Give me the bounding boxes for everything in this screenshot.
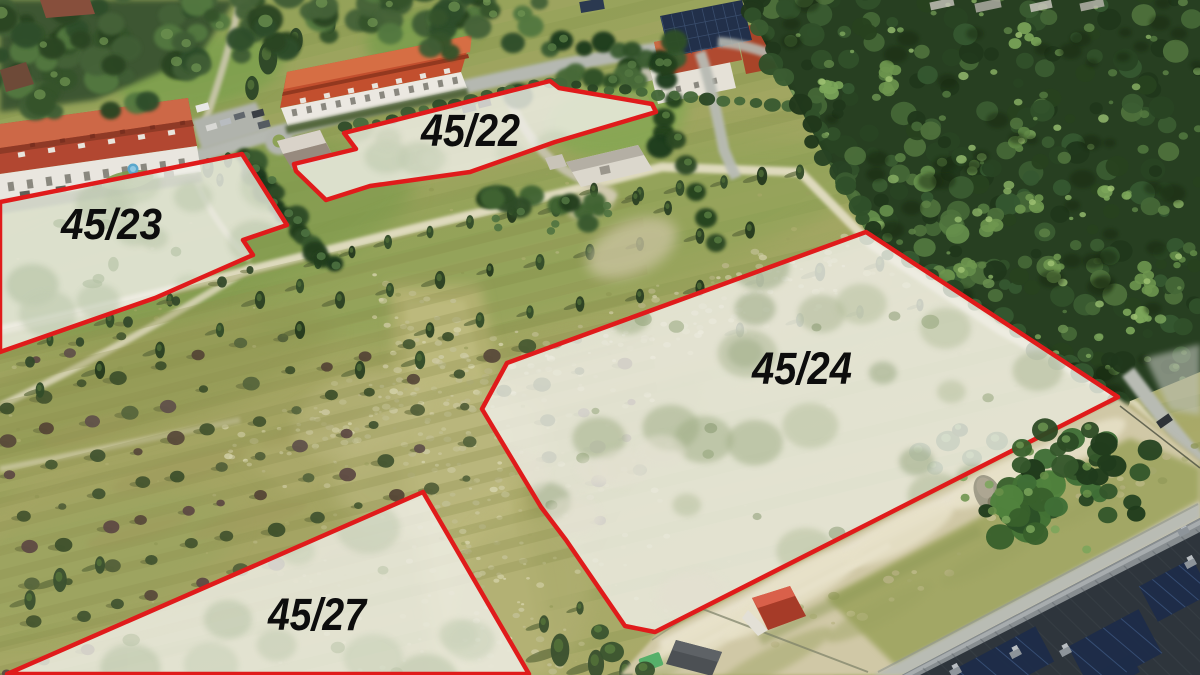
svg-text:45/27: 45/27 <box>267 589 368 640</box>
svg-text:45/22: 45/22 <box>420 105 520 156</box>
svg-text:45/23: 45/23 <box>60 200 162 249</box>
svg-text:45/24: 45/24 <box>751 343 852 394</box>
